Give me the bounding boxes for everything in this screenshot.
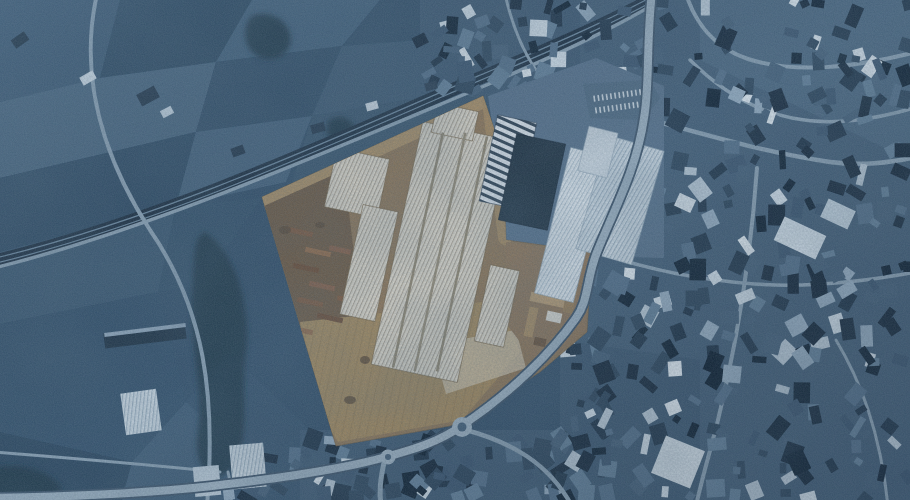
aerial-photo — [0, 0, 910, 500]
satellite-image — [0, 0, 910, 500]
photo-grain-overlay — [0, 0, 910, 500]
